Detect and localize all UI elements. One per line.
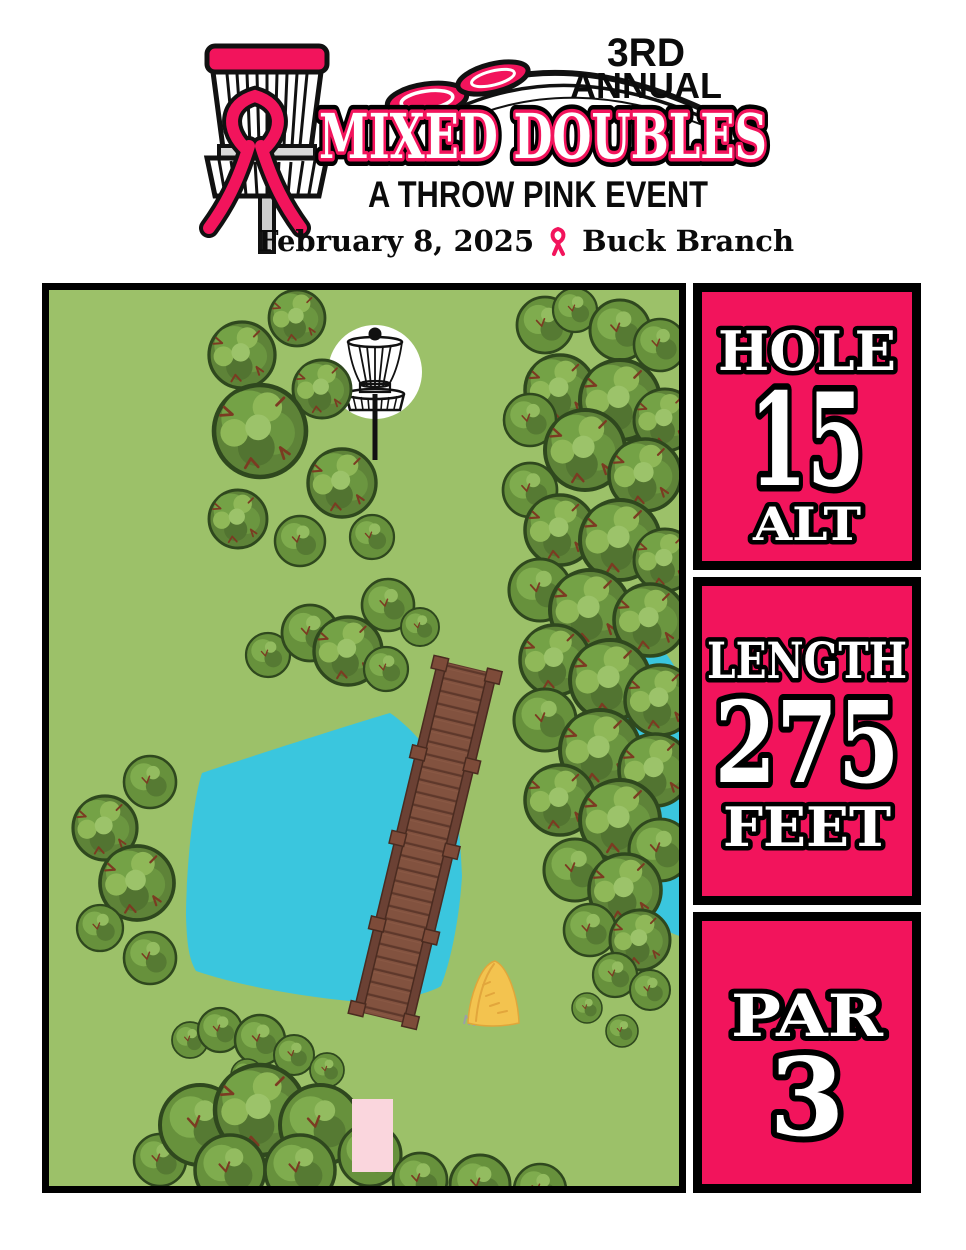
hole-suffix: ALT: [752, 497, 861, 551]
bushes-bottom: [134, 1008, 566, 1186]
length-panel: LENGTH 275 FEET: [693, 577, 921, 905]
hay-bale-icon: [464, 961, 519, 1026]
flyer-page: 3RD ANNUAL: [0, 0, 966, 1250]
tee-pad: [352, 1099, 393, 1172]
hole-panel: HOLE 15 ALT: [693, 283, 921, 570]
event-title-text: MIXED DOUBLES: [319, 100, 767, 173]
hole-number: 15: [750, 366, 865, 516]
event-location: Buck Branch: [582, 224, 794, 258]
header: 3RD ANNUAL: [0, 0, 966, 280]
par-value: 3: [769, 1035, 844, 1161]
event-subtitle-text: A THROW PINK EVENT: [368, 174, 708, 215]
length-unit: FEET: [723, 795, 891, 859]
par-panel: PAR 3: [693, 912, 921, 1193]
event-subtitle: A THROW PINK EVENT: [0, 172, 966, 218]
treeline-right: [503, 290, 679, 1047]
event-title: MIXED DOUBLES MIXED DOUBLES: [0, 90, 966, 185]
date-location-row: February 8, 2025 Buck Branch: [86, 221, 966, 261]
hole-map: [42, 283, 686, 1193]
event-date: February 8, 2025: [258, 224, 534, 258]
length-value: 275: [715, 678, 900, 809]
awareness-ribbon-icon: [547, 225, 569, 257]
